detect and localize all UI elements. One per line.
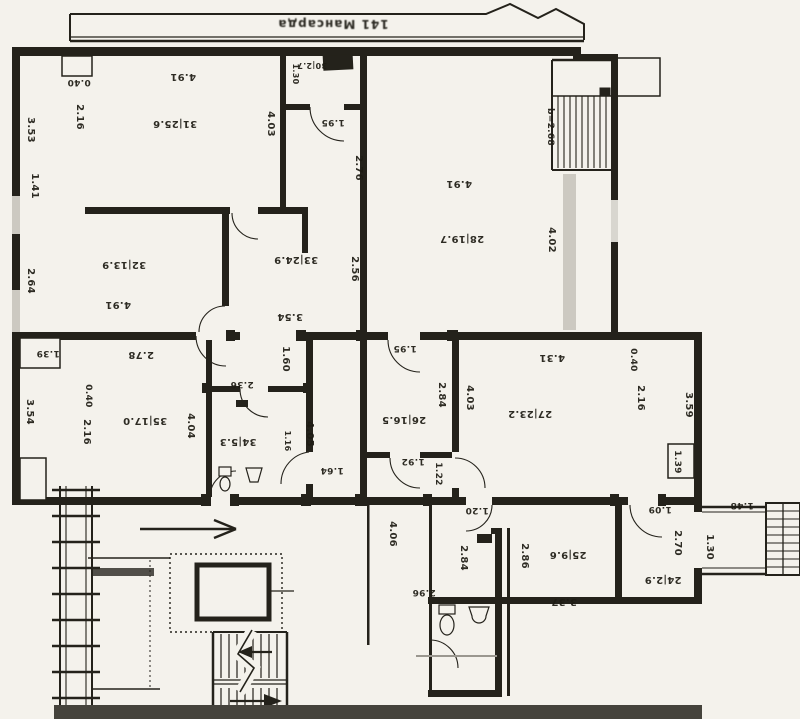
dim-label: 2.64: [25, 268, 36, 294]
room-label-31: 31|25.6: [153, 118, 197, 129]
dim-label: 1.09: [648, 504, 671, 514]
dim-label: 2.96: [412, 587, 435, 597]
left-gallery: [52, 486, 100, 716]
dim-label: 1.41: [29, 173, 40, 199]
dim-label: 0.40: [628, 348, 638, 371]
staircase-top-right: [552, 60, 614, 170]
dim-label: 4.05: [304, 421, 315, 447]
dim-label: 1.92: [401, 456, 424, 466]
dim-label: 3.54: [24, 399, 35, 425]
room-label-28: 28|19.7: [440, 233, 484, 244]
room-label-33: 33|24.9: [274, 254, 318, 265]
room-label-27: 27|23.2: [508, 408, 552, 419]
outer-walls: [12, 47, 702, 697]
dim-label: 4.03: [464, 385, 475, 411]
dim-label: 4.04: [185, 413, 196, 439]
lift-shaft: [170, 554, 294, 632]
dim-label: 1.20: [465, 505, 488, 515]
dim-label: 2.70: [672, 530, 683, 556]
room-label-35: 35|17.0: [123, 415, 167, 426]
dim-label: 4.91: [105, 299, 131, 310]
dim-label: 0.40: [83, 384, 93, 407]
dim-label: 1.39: [672, 450, 682, 473]
dim-label: 2.16: [635, 385, 646, 411]
room-label-26: 26|16.5: [382, 414, 426, 425]
dim-label: 1.60: [280, 346, 291, 372]
dim-label: 1.16: [283, 431, 292, 452]
dim-label: 2.76: [353, 155, 364, 181]
scan-artifact-strip: [563, 174, 576, 330]
dim-label: 3.53: [25, 117, 36, 143]
dim-label: 4.91: [446, 178, 472, 189]
scan-artifacts: [54, 656, 702, 719]
room-label-24: 24|2.9: [644, 574, 681, 585]
floorplan-drawing: 0.404.912.163.531.414.031.301.952.764.91…: [0, 0, 800, 719]
dim-label: 2.84: [436, 382, 447, 408]
dim-label: 3.59: [683, 392, 694, 418]
sink-wc: [469, 607, 489, 623]
dim-label: 3.37: [551, 596, 577, 607]
right-corridor-extension: [702, 503, 800, 575]
dim-label: 4.02: [546, 227, 557, 253]
dim-label: 4.31: [539, 352, 565, 363]
room-label-30: 30|2.7: [297, 61, 327, 70]
room-label-25: 25|9.6: [549, 549, 586, 560]
sink-room34: [246, 468, 262, 482]
room-label-32: 32|13.9: [102, 259, 146, 270]
toilet-room34: [219, 467, 231, 491]
dim-label: 1.64: [320, 465, 343, 475]
floorplan-sheet: 0.404.912.163.531.414.031.301.952.764.91…: [0, 0, 800, 719]
dim-label: 2.78: [128, 349, 154, 360]
dim-label: 2.36: [230, 379, 253, 389]
balcony-box: [616, 58, 660, 96]
sheet-title: 141 Мансарда: [248, 17, 418, 31]
dim-label: 3.54: [277, 311, 303, 322]
dim-label: 4.03: [265, 111, 276, 137]
dim-label: 4.91: [170, 71, 196, 82]
dim-label: 2.56: [349, 256, 360, 282]
entrance-arrow: [140, 520, 236, 538]
dim-label: 2.16: [81, 419, 92, 445]
toilet-wc: [439, 605, 455, 635]
dim-label: 2.84: [458, 545, 469, 571]
entrance-hall: [88, 520, 294, 689]
dim-label: 2.16: [74, 104, 85, 130]
dim-label: 1.30: [704, 534, 715, 560]
dim-label: 2.86: [519, 543, 530, 569]
dim-label: 1.48: [730, 500, 753, 510]
room-label-34: 34|5.3: [219, 436, 256, 447]
dim-label: 1.95: [321, 117, 344, 127]
dim-label: 0.40: [67, 77, 90, 87]
dim-label: 4.06: [387, 521, 398, 547]
dim-label: 1.22: [433, 462, 443, 485]
dim-label: b=2.68: [545, 108, 555, 146]
dim-label: 1.39: [36, 348, 59, 358]
dim-label: 1.95: [393, 343, 416, 353]
sanitary-fixtures: [219, 467, 489, 635]
